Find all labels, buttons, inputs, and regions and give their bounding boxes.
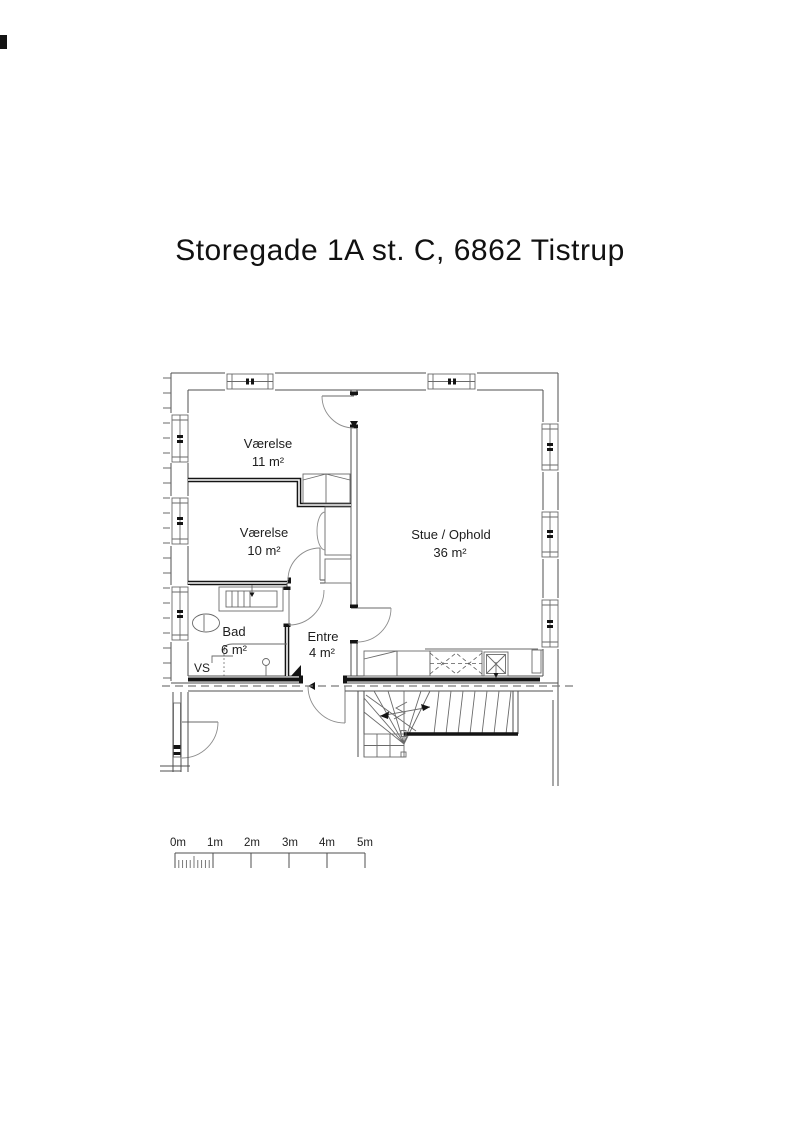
scan-artifact	[0, 35, 7, 49]
scale-bar: 0m 1m 2m 3m 4m 5m	[170, 837, 373, 868]
window-symbol	[170, 413, 190, 463]
room-area-label: 4 m²	[309, 645, 336, 660]
room-area-label: 10 m²	[247, 543, 281, 558]
stairs	[358, 691, 518, 757]
door-vaerelse-11	[322, 396, 358, 428]
scale-label: 3m	[282, 837, 298, 849]
room-entre: Entre 4 m²	[307, 629, 338, 660]
room-bad: Bad 6 m²	[221, 624, 248, 657]
room-stue-ophold: Stue / Ophold 36 m²	[411, 527, 491, 560]
room-area-label: 36 m²	[433, 545, 467, 560]
room-labels: Værelse 11 m² Værelse 10 m² Stue / Ophol…	[194, 436, 491, 675]
window-symbol	[170, 496, 190, 546]
kitchen-sink	[484, 652, 508, 678]
kitchen-cabinet	[397, 651, 430, 676]
scale-label: 1m	[207, 837, 223, 849]
scale-label: 2m	[244, 837, 260, 849]
exterior-walls	[163, 373, 558, 786]
window-symbol	[170, 585, 190, 642]
vs-label: VS	[194, 661, 210, 675]
window-symbol	[426, 371, 477, 392]
door-entre-stue	[357, 608, 391, 642]
room-name-label: Værelse	[244, 436, 292, 451]
door-bad	[289, 590, 324, 625]
room-name-label: Bad	[222, 624, 245, 639]
window-symbol	[540, 598, 560, 649]
room-area-label: 6 m²	[221, 642, 248, 657]
kitchen-counter	[364, 649, 543, 678]
room-vaerelse-11: Værelse 11 m²	[244, 436, 292, 469]
scale-label: 0m	[170, 837, 186, 849]
room-name-label: Værelse	[240, 525, 288, 540]
stair-landing	[160, 691, 553, 786]
party-wall-ticks	[163, 378, 171, 678]
door-entry	[308, 682, 345, 723]
door-vaerelse-10	[288, 548, 320, 580]
wardrobe-closets	[303, 474, 351, 583]
room-vaerelse-10: Værelse 10 m²	[240, 525, 288, 558]
scale-label: 5m	[357, 837, 373, 849]
vs-niche	[212, 656, 233, 663]
window-symbol	[540, 510, 560, 559]
washer-vanity-icon	[219, 585, 283, 611]
room-name-label: Stue / Ophold	[411, 527, 491, 542]
room-area-label: 11 m²	[252, 454, 285, 469]
window-symbol	[225, 371, 275, 392]
room-name-label: Entre	[307, 629, 338, 644]
scale-label: 4m	[319, 837, 335, 849]
toilet-icon	[193, 614, 220, 632]
window-symbol	[540, 422, 560, 472]
kitchen-end-panel	[532, 650, 541, 673]
floor-plan-drawing: Værelse 11 m² Værelse 10 m² Stue / Ophol…	[0, 0, 800, 1132]
floor-plan-page: { "title": "Storegade 1A st. C, 6862 Tis…	[0, 0, 800, 1132]
door-neighbor	[182, 722, 218, 758]
